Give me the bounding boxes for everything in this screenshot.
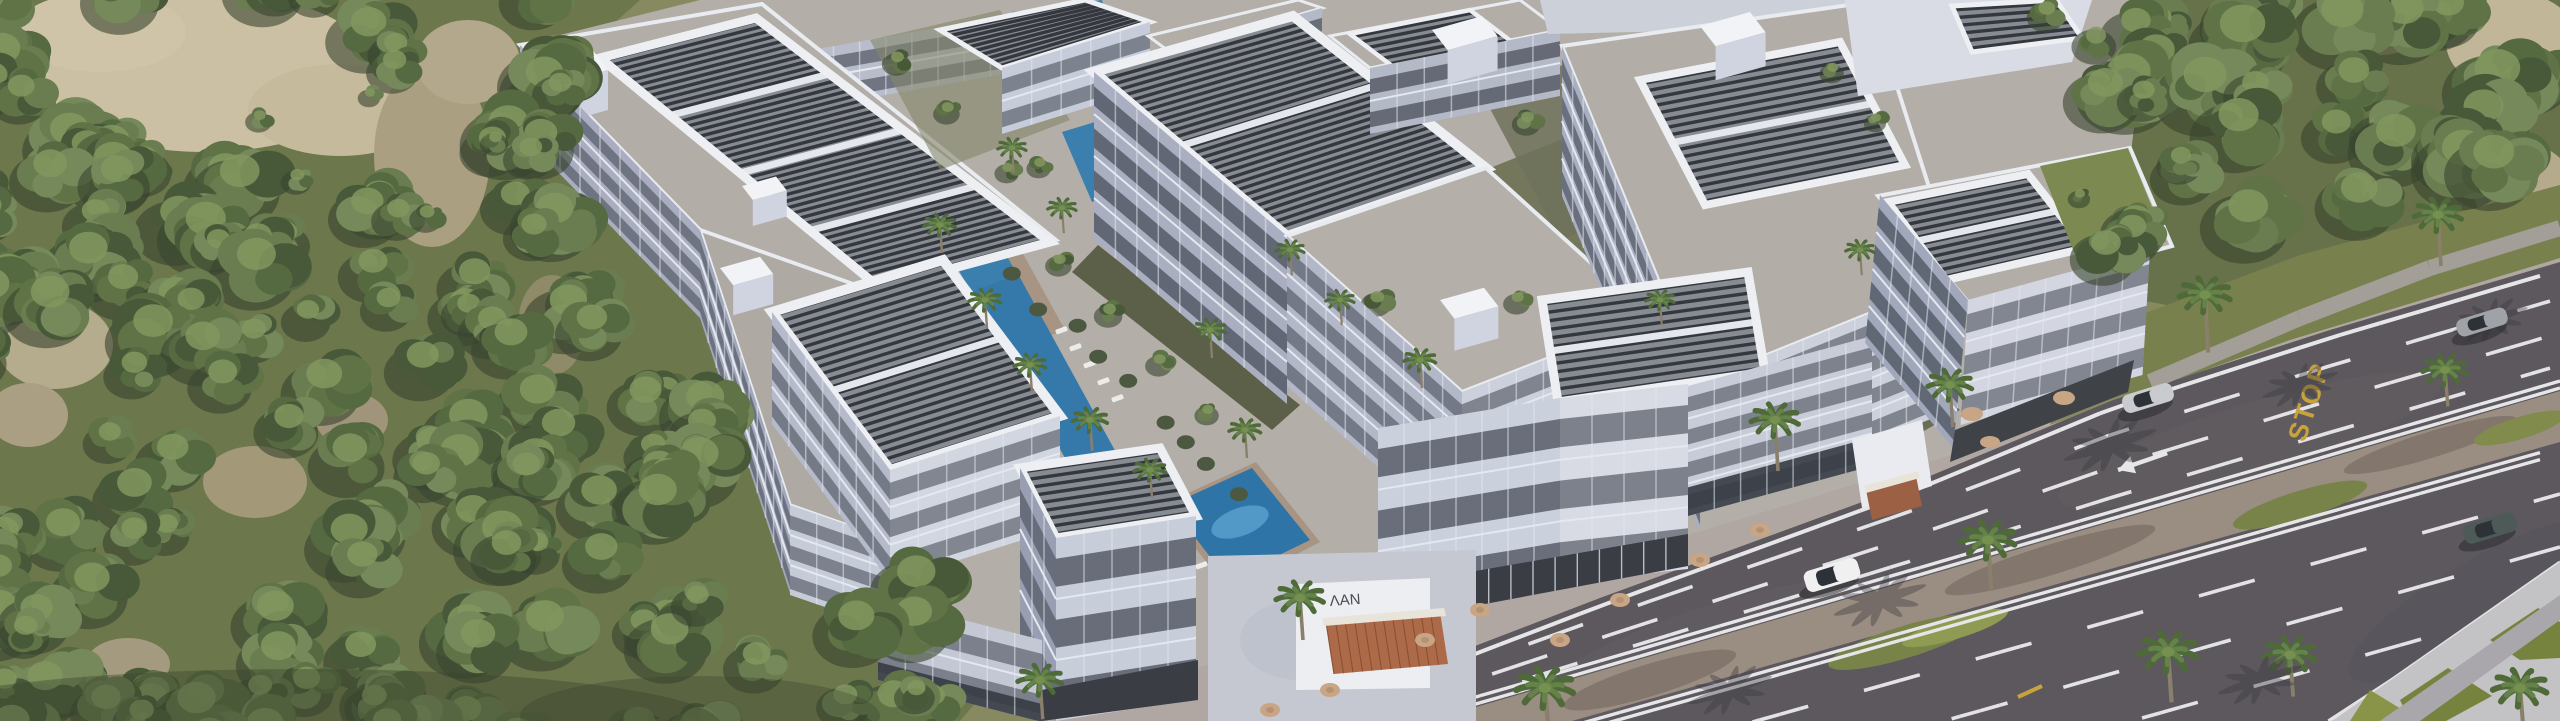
svg-text:ΛAN: ΛAN xyxy=(1329,591,1361,610)
